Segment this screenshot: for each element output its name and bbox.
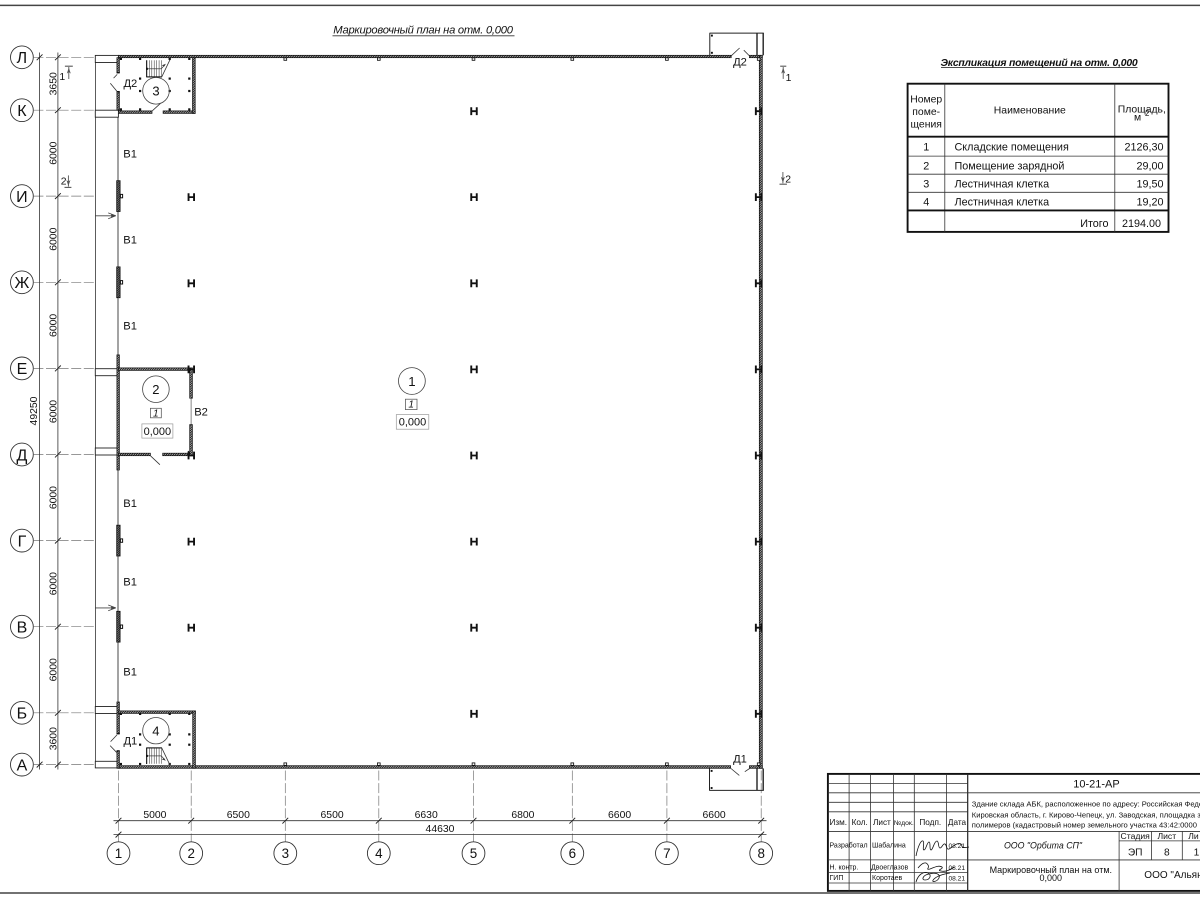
svg-text:2: 2 — [1145, 109, 1149, 118]
svg-text:6630: 6630 — [415, 810, 438, 821]
svg-text:Д: Д — [16, 447, 27, 464]
svg-text:Дата: Дата — [948, 818, 967, 827]
svg-text:2: 2 — [923, 160, 929, 172]
svg-text:Номер: Номер — [910, 95, 942, 106]
svg-text:08.21: 08.21 — [949, 875, 966, 882]
svg-text:И: И — [16, 189, 28, 206]
svg-text:Здание склада АБК, расположенн: Здание склада АБК, расположенное по адре… — [972, 799, 1200, 808]
svg-text:Лист: Лист — [873, 818, 891, 827]
svg-text:Коротаев: Коротаев — [872, 875, 903, 882]
svg-text:6: 6 — [569, 846, 576, 861]
svg-text:Площадь,: Площадь, — [1118, 104, 1166, 115]
svg-text:3: 3 — [923, 178, 929, 190]
svg-text:Складские помещения: Складские помещения — [955, 142, 1069, 154]
svg-text:1: 1 — [408, 400, 414, 411]
svg-text:10-21-АР: 10-21-АР — [1073, 779, 1119, 791]
svg-text:В1: В1 — [123, 577, 137, 589]
svg-text:ЭП: ЭП — [1128, 848, 1143, 859]
svg-text:6600: 6600 — [703, 810, 726, 821]
svg-text:2: 2 — [187, 846, 194, 861]
svg-text:44630: 44630 — [426, 824, 455, 835]
svg-text:2: 2 — [152, 382, 159, 397]
svg-text:В1: В1 — [123, 149, 137, 161]
svg-text:4: 4 — [152, 724, 159, 739]
svg-text:3650: 3650 — [48, 72, 59, 95]
svg-text:Стадия: Стадия — [1121, 831, 1151, 841]
svg-text:Итого: Итого — [1080, 218, 1108, 230]
svg-text:Е: Е — [17, 361, 28, 378]
svg-text:0,000: 0,000 — [1040, 873, 1063, 883]
svg-text:Изм.: Изм. — [830, 818, 848, 827]
svg-text:В1: В1 — [123, 498, 137, 510]
svg-text:Подп.: Подп. — [919, 818, 941, 827]
svg-text:м: м — [1134, 112, 1141, 123]
svg-text:29,00: 29,00 — [1136, 160, 1163, 172]
svg-text:4: 4 — [375, 846, 383, 861]
svg-text:5000: 5000 — [143, 810, 166, 821]
svg-text:ООО "Орбита СП": ООО "Орбита СП" — [1004, 841, 1083, 851]
svg-text:19,20: 19,20 — [1136, 197, 1163, 209]
svg-text:Кировская область, г. Кирово-Ч: Кировская область, г. Кирово-Чепецк, ул.… — [972, 811, 1200, 820]
svg-text:Д2: Д2 — [733, 56, 747, 68]
svg-text:2126,30: 2126,30 — [1124, 142, 1163, 154]
svg-text:Разработал: Разработал — [830, 842, 868, 850]
svg-text:Кол.: Кол. — [852, 818, 868, 827]
svg-text:6500: 6500 — [321, 810, 344, 821]
svg-text:полимеров (кадастровый номер з: полимеров (кадастровый номер земельного … — [972, 821, 1197, 830]
svg-text:6800: 6800 — [511, 810, 534, 821]
svg-text:2194.00: 2194.00 — [1122, 218, 1161, 230]
svg-text:6000: 6000 — [48, 572, 59, 595]
svg-text:1: 1 — [923, 142, 929, 154]
svg-text:2: 2 — [61, 176, 67, 187]
svg-text:Д1: Д1 — [123, 735, 137, 747]
svg-text:№док.: №док. — [894, 820, 914, 827]
svg-text:6000: 6000 — [48, 400, 59, 423]
svg-text:49250: 49250 — [29, 396, 40, 425]
svg-text:3600: 3600 — [48, 727, 59, 750]
svg-text:5: 5 — [470, 846, 477, 861]
svg-text:1: 1 — [115, 846, 122, 861]
svg-text:1: 1 — [1194, 848, 1200, 859]
svg-text:6000: 6000 — [48, 658, 59, 681]
svg-text:6000: 6000 — [48, 227, 59, 250]
svg-text:Ли: Ли — [1188, 831, 1199, 841]
svg-text:Лестничная клетка: Лестничная клетка — [955, 178, 1050, 190]
svg-text:2: 2 — [785, 174, 791, 185]
svg-text:6000: 6000 — [48, 314, 59, 337]
svg-text:6600: 6600 — [608, 810, 631, 821]
svg-text:1: 1 — [153, 408, 159, 419]
svg-text:8: 8 — [757, 846, 764, 861]
svg-text:3: 3 — [152, 84, 159, 99]
svg-text:К: К — [17, 103, 27, 120]
svg-text:ООО "Альянс: ООО "Альянс — [1144, 870, 1200, 881]
svg-text:6500: 6500 — [227, 810, 250, 821]
svg-text:Ж: Ж — [15, 275, 30, 292]
svg-text:ГИП: ГИП — [830, 875, 844, 882]
svg-text:А: А — [17, 757, 28, 774]
svg-text:19,50: 19,50 — [1136, 178, 1163, 190]
svg-text:Помещение зарядной: Помещение зарядной — [955, 160, 1065, 172]
svg-text:Лестничная клетка: Лестничная клетка — [955, 197, 1050, 209]
svg-text:4: 4 — [923, 197, 929, 209]
svg-text:Д1: Д1 — [733, 754, 747, 766]
svg-text:08.21: 08.21 — [949, 865, 966, 872]
svg-text:6000: 6000 — [48, 486, 59, 509]
svg-text:0,000: 0,000 — [144, 426, 172, 438]
svg-text:поме-: поме- — [912, 107, 940, 118]
svg-text:Лист: Лист — [1157, 831, 1176, 841]
svg-text:В: В — [17, 620, 28, 637]
svg-text:1: 1 — [408, 374, 415, 389]
svg-text:В1: В1 — [123, 667, 137, 679]
svg-text:8: 8 — [1164, 848, 1170, 859]
svg-text:Б: Б — [17, 706, 28, 723]
svg-text:Д2: Д2 — [123, 78, 137, 90]
svg-text:щения: щения — [911, 119, 942, 130]
svg-text:6000: 6000 — [48, 141, 59, 164]
svg-text:1: 1 — [59, 72, 65, 83]
svg-text:Л: Л — [17, 50, 28, 67]
svg-text:Маркировочный план на отм. 0,0: Маркировочный план на отм. 0,000 — [333, 24, 513, 36]
svg-text:1: 1 — [786, 73, 792, 84]
svg-text:В2: В2 — [194, 406, 208, 418]
svg-text:Двоеглазов: Двоеглазов — [871, 865, 908, 872]
svg-text:7: 7 — [663, 846, 670, 861]
svg-text:В1: В1 — [123, 321, 137, 333]
svg-text:В1: В1 — [123, 235, 137, 247]
svg-text:Н. контр.: Н. контр. — [830, 865, 859, 872]
svg-text:0,000: 0,000 — [399, 417, 427, 429]
svg-text:Шабалина: Шабалина — [872, 842, 906, 850]
svg-text:3: 3 — [282, 846, 289, 861]
svg-text:Наименование: Наименование — [994, 106, 1066, 117]
svg-text:Г: Г — [18, 533, 27, 550]
